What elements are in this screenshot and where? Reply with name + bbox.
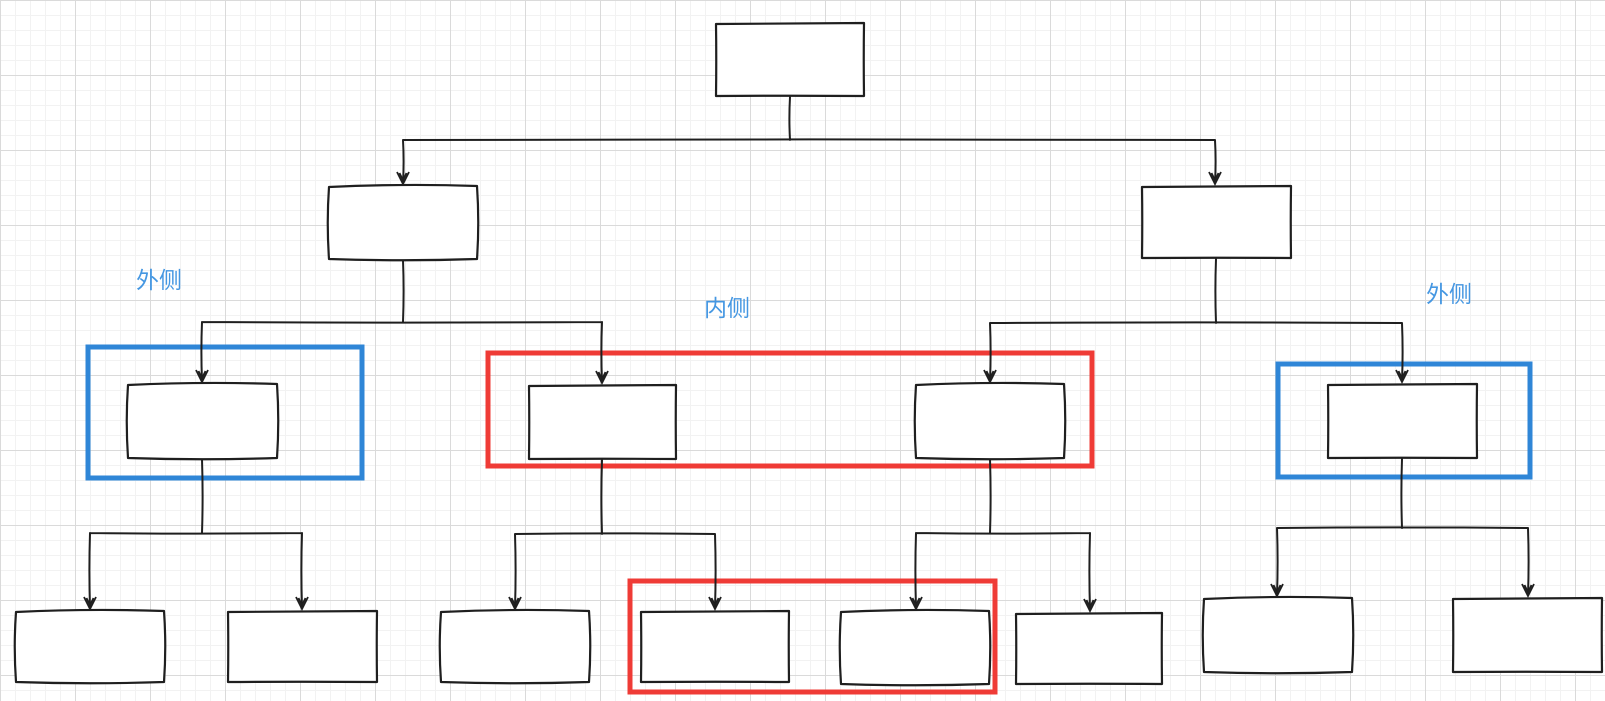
node-leaf-3[interactable]	[440, 610, 591, 683]
edge-inner-left-children[interactable]	[509, 460, 721, 609]
node-leaf-4[interactable]	[641, 611, 789, 682]
node-inner-right[interactable]	[915, 383, 1066, 459]
edge-inner-right-children[interactable]	[910, 459, 1096, 611]
node-outer-left[interactable]	[127, 383, 279, 459]
label-outer-left[interactable]: 外侧	[136, 268, 182, 294]
edge-root-to-branches[interactable]	[397, 97, 1221, 184]
edge-outer-right-children[interactable]	[1271, 459, 1534, 596]
label-inner[interactable]: 内侧	[704, 296, 750, 322]
node-leaf-8[interactable]	[1453, 598, 1602, 672]
node-leaf-5[interactable]	[840, 610, 991, 685]
edge-branch-left-children[interactable]	[196, 260, 608, 383]
node-leaf-1[interactable]	[15, 610, 166, 683]
node-branch-left[interactable]	[328, 185, 479, 260]
edge-outer-left-children[interactable]	[84, 459, 308, 609]
node-inner-left[interactable]	[529, 385, 676, 459]
node-leaf-2[interactable]	[228, 611, 377, 682]
node-branch-right[interactable]	[1142, 186, 1291, 258]
node-root[interactable]	[716, 23, 864, 96]
node-outer-right[interactable]	[1328, 384, 1477, 458]
flowchart-svg: 外侧内侧外侧	[0, 0, 1605, 701]
label-outer-right[interactable]: 外侧	[1426, 282, 1472, 308]
node-leaf-6[interactable]	[1016, 613, 1162, 684]
diagram-canvas: 外侧内侧外侧	[0, 0, 1605, 701]
node-leaf-7[interactable]	[1203, 597, 1354, 673]
